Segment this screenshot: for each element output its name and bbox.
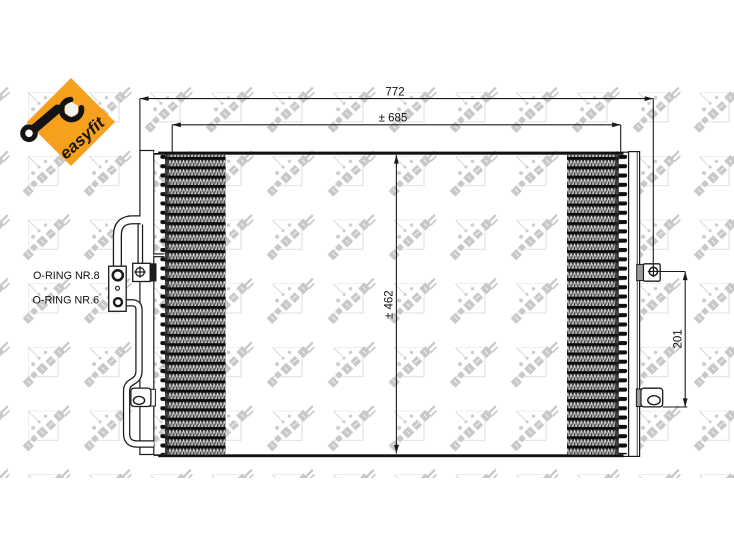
svg-text:201: 201 [673, 329, 685, 348]
svg-text:± 462: ± 462 [384, 290, 396, 319]
svg-text:± 685: ± 685 [379, 112, 408, 124]
svg-text:O-RING NR.8: O-RING NR.8 [33, 270, 100, 282]
svg-text:O-RING NR.6: O-RING NR.6 [33, 295, 100, 307]
svg-text:772: 772 [385, 86, 404, 98]
